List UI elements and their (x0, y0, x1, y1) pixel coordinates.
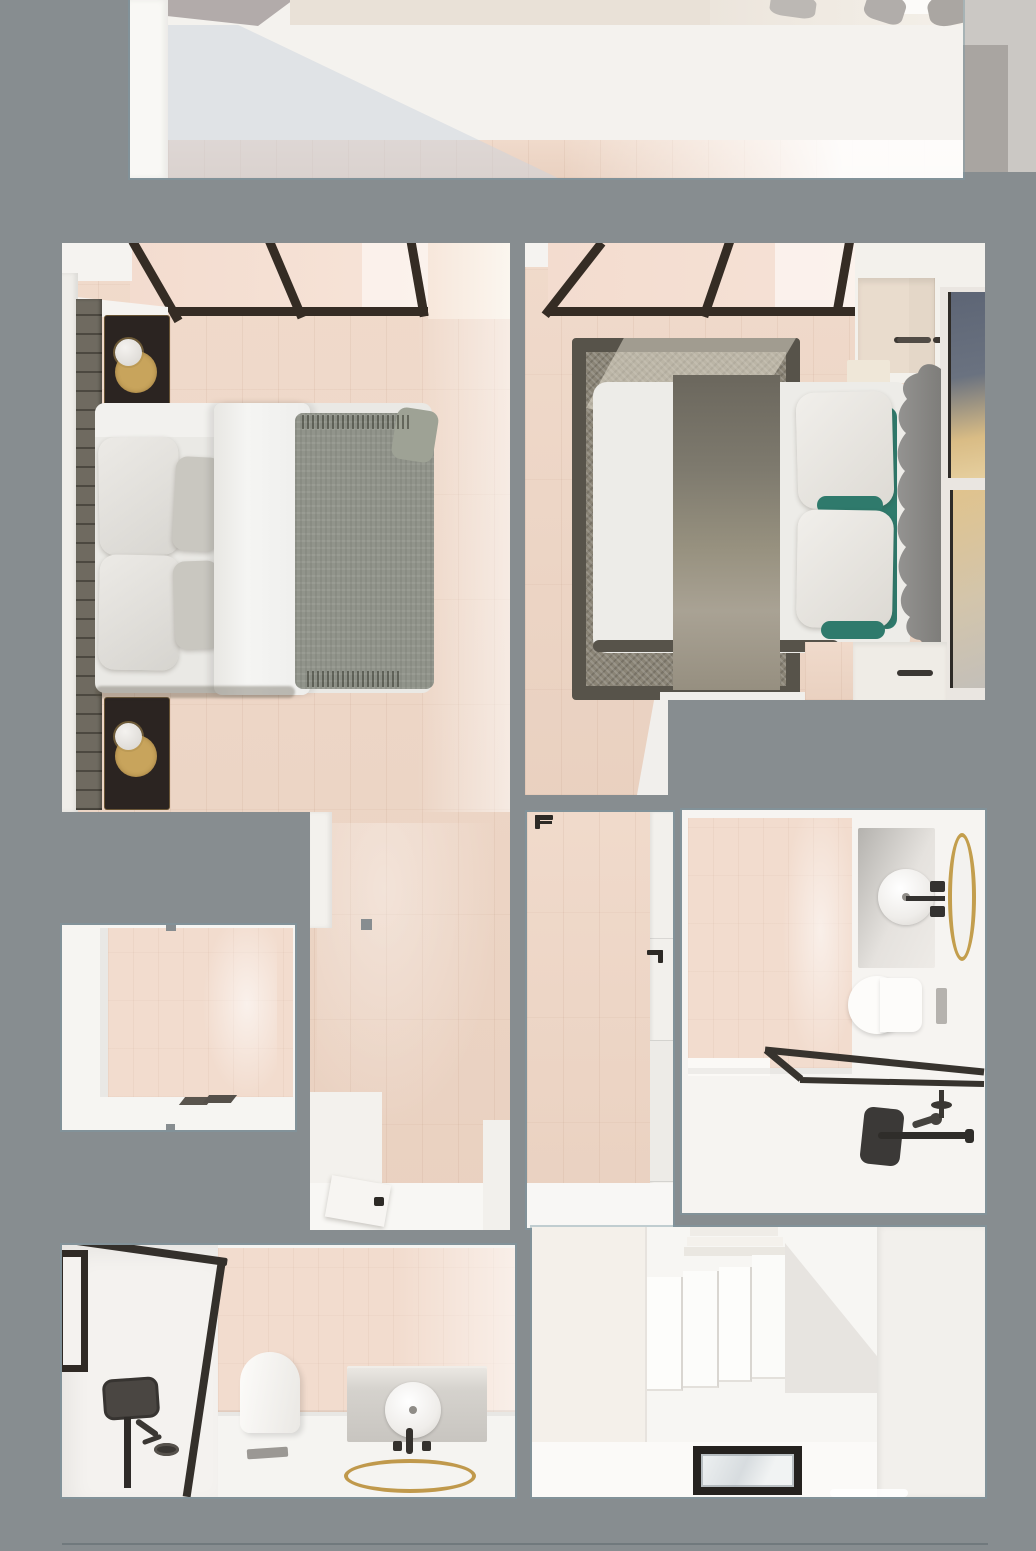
shower-valve-knob (931, 1101, 952, 1109)
sphere-table-lamp (115, 339, 142, 366)
shower-screen-frame (682, 810, 985, 1213)
cream-wall-band (290, 0, 710, 25)
hall-floor-white (527, 1183, 673, 1228)
light-streak (830, 1489, 908, 1497)
towel-rail (897, 337, 931, 343)
closet-nook-panel (858, 278, 935, 373)
right-wall-block (877, 1227, 985, 1497)
stair-slab (647, 1277, 683, 1391)
sink-drain (409, 1406, 417, 1414)
black-tap-knob (422, 1441, 431, 1451)
wall-pillar (130, 0, 168, 178)
gray-wall-shape (168, 0, 293, 26)
grab-bar (878, 1132, 969, 1139)
stair-slab (683, 1271, 719, 1388)
room-bathroom-right (682, 810, 985, 1213)
door-frame-mark (166, 925, 176, 931)
door-handle-strip (203, 1095, 237, 1103)
wardrobe-sheen (202, 928, 277, 1097)
bed-frame-shadow (95, 686, 295, 698)
window (62, 1250, 88, 1372)
pillow-white (98, 554, 180, 670)
shower-pole (124, 1417, 131, 1488)
exterior-shadow-band (958, 45, 1008, 172)
wall-art-frame-bottom (950, 490, 985, 688)
door-handle-top-stem (535, 815, 540, 829)
books-stack (847, 360, 890, 383)
wall-joint-line (650, 938, 673, 939)
room-living-partial (130, 0, 963, 178)
window-frame-rail (548, 307, 858, 316)
white-floor-sliver (660, 692, 805, 700)
black-tap-knob (393, 1441, 402, 1451)
corridor-wall-wedge (637, 700, 668, 795)
room-bedroom-right (525, 243, 985, 795)
round-brass-mirror-ring (344, 1459, 476, 1493)
wavy-upholstered-headboard (891, 361, 941, 648)
glass-floor-skylight (693, 1446, 802, 1495)
upper-step (687, 1237, 783, 1246)
pillow-white (796, 509, 894, 629)
hose-fitting (154, 1443, 179, 1456)
stair-slab (719, 1267, 752, 1382)
panel-shadow (100, 928, 108, 1097)
door-handle (374, 1197, 384, 1206)
toilet (240, 1352, 300, 1433)
grab-bar-knob (965, 1129, 974, 1143)
hall-wall-lower-right (483, 1120, 510, 1230)
wood-patch (805, 642, 853, 700)
door-frame-mark (166, 1124, 175, 1130)
room-wardrobe (62, 925, 295, 1130)
room-staircase (532, 1227, 985, 1497)
landing-left-area (532, 1227, 647, 1442)
pillow-white (795, 391, 894, 509)
upper-step (690, 1227, 778, 1236)
room-bathroom-bottom (62, 1245, 515, 1497)
baseline-shadow-line (62, 1543, 988, 1545)
door-recess (650, 1040, 673, 1182)
textured-bed-runner (673, 375, 780, 690)
floor-drain (247, 1447, 289, 1460)
stair-slab (752, 1255, 787, 1379)
hall-wall-upper (310, 812, 332, 928)
diagonal-light-shadow (168, 25, 558, 178)
floorplan-render (0, 0, 1036, 1551)
pillow-white (98, 436, 180, 555)
room-hallway-middle (527, 812, 673, 1228)
door-hinge-mark (361, 919, 372, 930)
wall-art-frame-top (948, 292, 985, 478)
black-shower-panel (102, 1376, 161, 1421)
floor-sun-wash (560, 140, 963, 178)
corner-sun (428, 243, 510, 319)
door-handle-right-stem (658, 950, 663, 963)
black-tap-spout (406, 1428, 413, 1454)
blanket-fringe (307, 671, 402, 687)
blanket-fringe (302, 415, 412, 429)
window-frame-rail (174, 307, 428, 316)
teal-accent-pillow (821, 621, 885, 639)
sphere-table-lamp (115, 723, 142, 750)
cabinet-towel-bar (897, 670, 933, 676)
